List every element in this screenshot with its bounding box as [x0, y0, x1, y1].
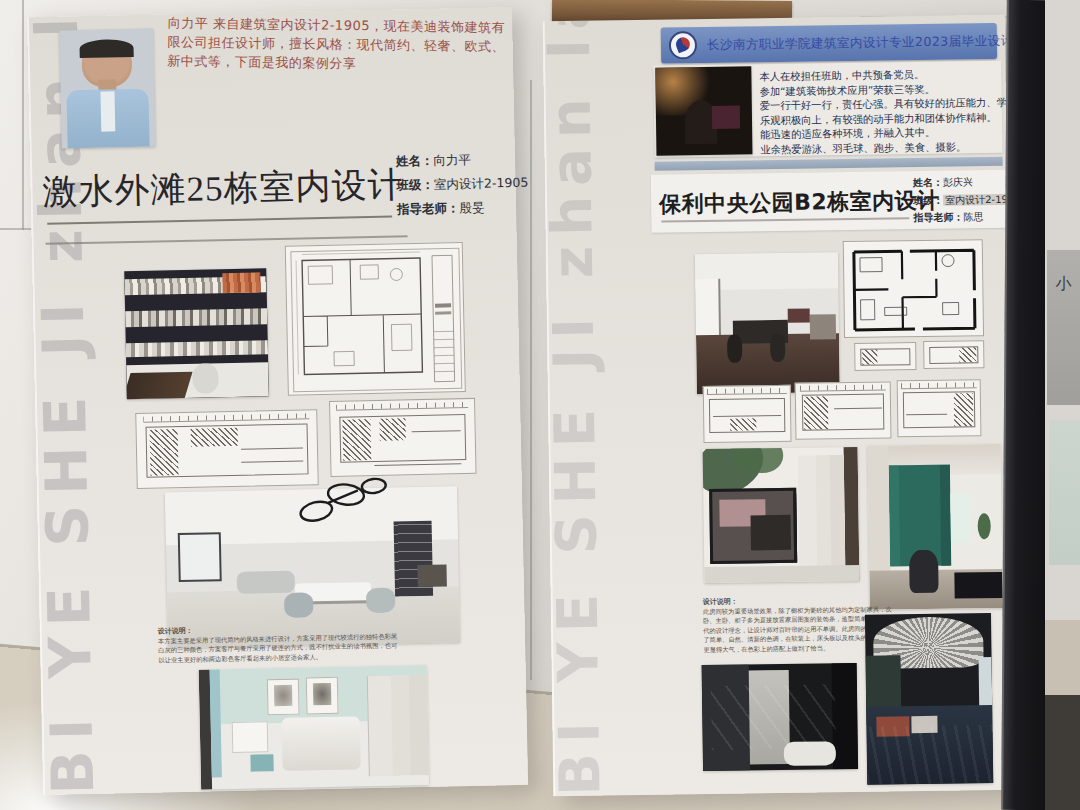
elevation-drawing — [795, 381, 892, 439]
hall-floor — [1045, 620, 1080, 700]
dark-living-render — [695, 252, 840, 394]
hallway-photo: BI YE SHE JI zhan lan 向力平 来自建筑室内设计2-1905… — [0, 0, 1080, 810]
metal-bed-bedroom-render — [703, 447, 860, 583]
bw-floor-plan — [843, 239, 984, 338]
teacher-label: 指导老师： — [913, 211, 963, 223]
elevation-drawing — [897, 379, 982, 437]
elevation-drawing — [329, 398, 477, 477]
right-title-box: 保利中央公园B2栋室内设计 姓名：彭庆兴 班级：室内设计2-1906班 指导老师… — [651, 170, 1008, 233]
hallway-glimpse: 小 — [1045, 0, 1080, 810]
right-poster-title: 保利中央公园B2栋室内设计 — [659, 186, 940, 220]
banner: 长沙南方职业学院建筑室内设计专业2023届毕业设计展 — [661, 23, 997, 64]
watermark-text: BI YE SHE JI zhan lan — [537, 20, 613, 796]
green-wardrobe-room-render — [868, 444, 1003, 610]
name-label: 姓名： — [913, 177, 943, 188]
right-intro-box: 本人在校担任班助，中共预备党员。 参加“建筑装饰技术应用”荣获三等奖。 爱一行干… — [653, 61, 1002, 158]
note-body: 本方案主要是采用了现代简约的风格来进行设计，方案采用了现代较流行的独特色彩黑白灰… — [158, 632, 399, 665]
tile-grout-line — [530, 80, 532, 680]
name-value: 向力平 — [433, 152, 471, 168]
dark-bedroom-render — [865, 613, 993, 785]
class-label: 班级： — [913, 194, 943, 205]
school-logo-icon — [669, 31, 697, 59]
study-room-render — [124, 268, 269, 399]
left-student-photo — [59, 29, 155, 149]
left-poster-board: BI YE SHE JI zhan lan 向力平 来自建筑室内设计2-1905… — [27, 7, 528, 795]
floor-plan-drawing — [285, 242, 466, 396]
name-value: 彭庆兴 — [943, 176, 973, 187]
right-poster-board: BI YE SHE JI zhan lan 长沙南方职业学院建筑室内设计专业20… — [543, 15, 1016, 796]
mini-elevation — [854, 342, 916, 371]
class-label: 班级： — [396, 176, 434, 192]
left-intro-text: 向力平 来自建筑室内设计2-1905，现在美迪装饰建筑有限公司担任设计师，擅长风… — [167, 14, 506, 75]
mini-elevation — [923, 340, 984, 369]
name-label: 姓名： — [396, 153, 434, 169]
teacher-value: 殷旻 — [459, 199, 484, 215]
left-poster-title: 激水外滩25栋室内设计 — [42, 161, 404, 216]
class-value: 室内设计2-1905 — [434, 174, 529, 191]
elevation-drawing — [703, 385, 792, 443]
left-student-info: 姓名：向力平 班级：室内设计2-1905 指导老师：殷旻 — [396, 147, 529, 221]
glass-panel — [1049, 420, 1080, 565]
chandelier — [287, 472, 398, 528]
wall-sign-text: 小 — [1056, 274, 1072, 295]
door-frame — [1001, 0, 1051, 810]
bedroom-render — [199, 665, 429, 790]
left-design-note: 设计说明： 本方案主要是采用了现代简约的风格来进行设计，方案采用了现代较流行的独… — [158, 622, 399, 665]
hall-shadow — [1045, 695, 1080, 810]
banner-text: 长沙南方职业学院建筑室内设计专业2023届毕业设计展 — [707, 33, 1027, 54]
dark-bathroom-render — [702, 663, 858, 771]
teacher-value: 陈思 — [963, 211, 983, 222]
right-student-photo — [655, 66, 752, 155]
right-intro-text: 本人在校担任班助，中共预备党员。 参加“建筑装饰技术应用”荣获三等奖。 爱一行干… — [759, 65, 1038, 157]
wall-sign: 小 — [1047, 250, 1080, 405]
divider-bar — [655, 157, 1003, 171]
title-underline — [47, 216, 392, 225]
teacher-label: 指导老师： — [397, 200, 460, 216]
